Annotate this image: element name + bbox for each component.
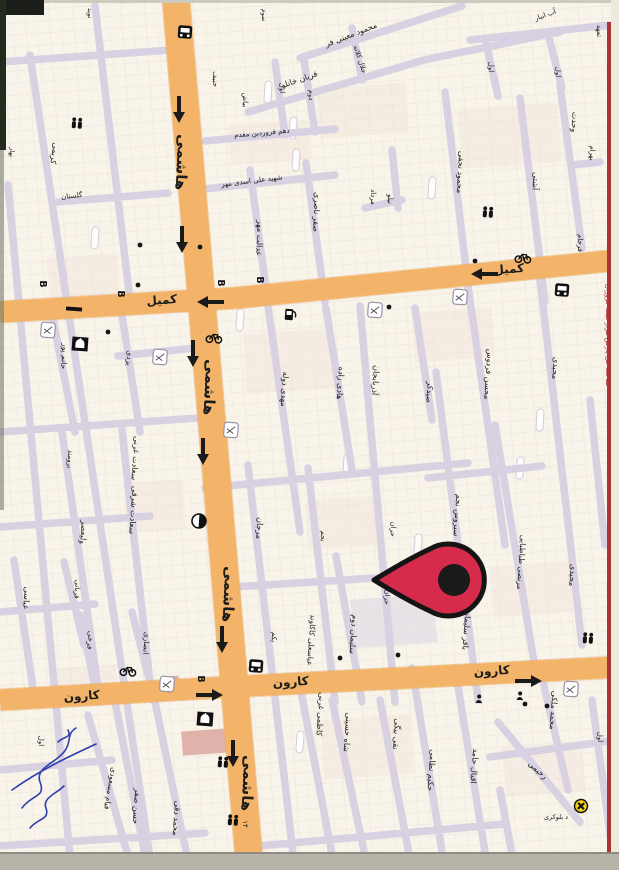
street-label: بهرام bbox=[588, 145, 596, 160]
street-label: نیلو bbox=[386, 193, 394, 204]
street-label: عدالت مهر bbox=[254, 219, 264, 257]
poi-dot bbox=[545, 704, 550, 709]
pin-center-dot bbox=[438, 564, 470, 596]
poi-dot bbox=[198, 245, 203, 250]
bus-icon bbox=[178, 25, 193, 39]
mosque-icon bbox=[197, 711, 214, 726]
street-label: برومند bbox=[65, 450, 74, 469]
parcel-pill bbox=[428, 177, 437, 199]
street-label: مرجان bbox=[254, 517, 265, 540]
poi-dot bbox=[473, 259, 478, 264]
parcel-pill bbox=[91, 227, 100, 249]
street-label: حنیف bbox=[211, 71, 219, 87]
bus-stop-letter: B bbox=[254, 276, 265, 283]
street-label: اول bbox=[554, 67, 562, 77]
street-label: حاتم پور bbox=[59, 342, 70, 370]
street-label: عباسی bbox=[21, 586, 32, 610]
street-label: هاشمی bbox=[172, 134, 193, 191]
xmark-icon bbox=[574, 799, 588, 813]
street-label: مجیدی bbox=[550, 357, 561, 380]
street-label: قربانی bbox=[72, 579, 81, 599]
street-label: تعهد bbox=[595, 25, 603, 37]
badge-icon bbox=[40, 322, 55, 338]
street-label: فرخی bbox=[85, 631, 95, 651]
street-label: نوید bbox=[86, 8, 94, 19]
street-label: اول bbox=[487, 62, 495, 72]
street-label: هاشمی bbox=[219, 566, 240, 623]
poi-dot bbox=[387, 305, 392, 310]
poi-dot bbox=[338, 656, 343, 661]
street-label: سوم bbox=[260, 9, 268, 22]
street-label: صیدکر bbox=[424, 380, 435, 403]
street-label: نجم bbox=[319, 530, 328, 542]
street-label: هاشمی bbox=[238, 755, 259, 812]
street-label: فرجام bbox=[576, 234, 584, 252]
parcel-pill bbox=[296, 731, 305, 753]
bus-stop-letter: B bbox=[37, 280, 48, 287]
poi-dot bbox=[138, 243, 143, 248]
poi-dot bbox=[396, 653, 401, 658]
street-label: صفر ناصری bbox=[311, 192, 321, 232]
poi-dot bbox=[523, 702, 528, 707]
badge-icon bbox=[152, 349, 167, 365]
street-label: مرداد bbox=[369, 189, 377, 205]
parcel-pill bbox=[264, 81, 273, 103]
bus-icon bbox=[249, 659, 264, 673]
street-label: انصاری bbox=[141, 632, 152, 655]
street-label: حران bbox=[388, 521, 397, 537]
street-label: ۱۴ bbox=[241, 820, 249, 828]
pie-icon bbox=[192, 514, 207, 529]
street-label: بیاض bbox=[241, 93, 249, 108]
street-label: یزدی bbox=[124, 350, 134, 366]
scanned-map-page: BBBBB هاشمیهاشمیهاشمیهاشمیکمیلکمیلکارونک… bbox=[0, 0, 619, 870]
street-label: اول bbox=[596, 732, 604, 742]
poi-dot bbox=[136, 283, 141, 288]
badge-icon bbox=[159, 676, 174, 692]
scanner-bed bbox=[0, 854, 619, 870]
street-label: هاشمی bbox=[200, 359, 221, 416]
map-canvas: BBBBB هاشمیهاشمیهاشمیهاشمیکمیلکمیلکارونک… bbox=[0, 0, 619, 870]
street-label: اول bbox=[37, 736, 45, 746]
parcel-pill bbox=[236, 309, 245, 331]
street-label: مجیدی bbox=[567, 564, 578, 587]
street-label: کمیل bbox=[146, 292, 178, 308]
bus-stop-letter: B bbox=[195, 675, 206, 682]
map-border-line bbox=[607, 22, 611, 852]
street-label: بهار bbox=[8, 146, 17, 158]
street-label: اول bbox=[278, 83, 286, 93]
bus-stop-letter: B bbox=[115, 290, 126, 297]
parcel-pill bbox=[292, 149, 301, 171]
poi-dot bbox=[106, 330, 111, 335]
bus-icon bbox=[555, 283, 570, 297]
street-label: کمیل bbox=[493, 261, 525, 277]
street-label: ولیعصر bbox=[78, 519, 89, 545]
mosque-icon bbox=[72, 336, 89, 351]
badge-icon bbox=[223, 422, 238, 438]
badge-icon bbox=[367, 302, 382, 318]
street-label: وحدت bbox=[569, 112, 579, 133]
badge-icon bbox=[452, 289, 467, 305]
street-label: دوم bbox=[307, 90, 315, 101]
parcel-pill bbox=[536, 409, 545, 431]
badge-icon bbox=[563, 681, 578, 697]
street-label: یکم bbox=[270, 632, 279, 643]
street-label: د بلوکری bbox=[544, 813, 568, 821]
street-label: آشتی bbox=[530, 172, 541, 191]
bus-stop-letter: B bbox=[215, 279, 226, 286]
